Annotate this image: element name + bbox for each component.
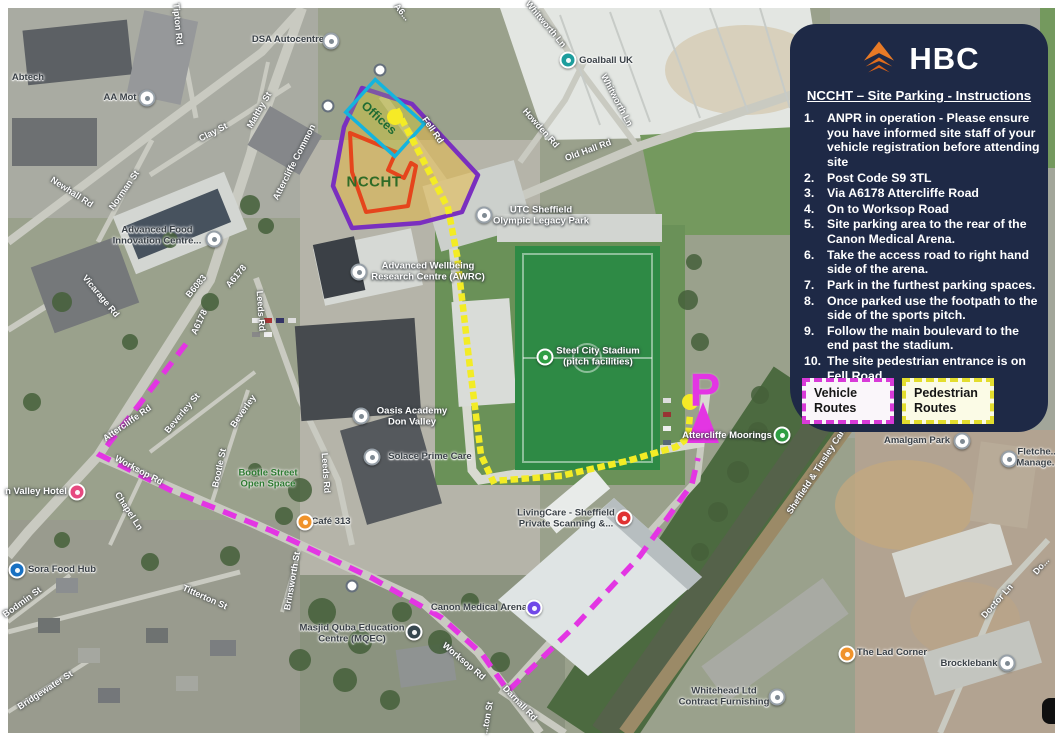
instruction-number: 7. <box>804 278 827 293</box>
instructions-panel: HBC NCCHT – Site Parking - Instructions … <box>790 24 1048 432</box>
instruction-number: 3. <box>804 186 827 201</box>
instruction-text: ANPR in operation - Please ensure you ha… <box>827 111 1040 170</box>
instruction-item: 4.On to Worksop Road <box>804 202 1040 217</box>
instruction-item: 5.Site parking area to the rear of the C… <box>804 217 1040 246</box>
instruction-text: On to Worksop Road <box>827 202 949 217</box>
instruction-number: 1. <box>804 111 827 170</box>
ncch-site-label: NCCHT <box>347 174 402 191</box>
instruction-number: 2. <box>804 171 827 186</box>
hbc-chevron-icon <box>858 39 900 79</box>
parking-p-marker: P <box>690 363 721 417</box>
hbc-logo: HBC <box>790 24 1048 79</box>
instruction-text: Park in the furthest parking spaces. <box>827 278 1035 293</box>
instruction-number: 4. <box>804 202 827 217</box>
instruction-number: 8. <box>804 294 827 323</box>
instruction-number: 5. <box>804 217 827 246</box>
instruction-text: Take the access road to right hand side … <box>827 248 1040 277</box>
instruction-item: 2.Post Code S9 3TL <box>804 171 1040 186</box>
hbc-logo-text: HBC <box>909 41 979 77</box>
instruction-item: 3.Via A6178 Attercliffe Road <box>804 186 1040 201</box>
legend-pedestrian-routes: Pedestrian Routes <box>902 378 994 424</box>
panel-title: NCCHT – Site Parking - Instructions <box>790 88 1048 103</box>
instruction-item: 9.Follow the main boulevard to the end p… <box>804 324 1040 353</box>
instruction-number: 9. <box>804 324 827 353</box>
instruction-item: 7.Park in the furthest parking spaces. <box>804 278 1040 293</box>
legend-vehicle-routes: Vehicle Routes <box>802 378 894 424</box>
map-corner-artifact <box>1042 698 1055 724</box>
instruction-text: Post Code S9 3TL <box>827 171 932 186</box>
instruction-text: Follow the main boulevard to the end pas… <box>827 324 1040 353</box>
instruction-item: 1.ANPR in operation - Please ensure you … <box>804 111 1040 170</box>
legend-pedestrian-label: Pedestrian Routes <box>914 386 978 415</box>
instruction-item: 8.Once parked use the footpath to the si… <box>804 294 1040 323</box>
instruction-text: Site parking area to the rear of the Can… <box>827 217 1040 246</box>
instructions-list: 1.ANPR in operation - Please ensure you … <box>790 111 1048 383</box>
instruction-item: 6.Take the access road to right hand sid… <box>804 248 1040 277</box>
instruction-text: Once parked use the footpath to the side… <box>827 294 1040 323</box>
instruction-number: 6. <box>804 248 827 277</box>
instruction-text: Via A6178 Attercliffe Road <box>827 186 979 201</box>
legend-vehicle-label: Vehicle Routes <box>814 386 857 415</box>
